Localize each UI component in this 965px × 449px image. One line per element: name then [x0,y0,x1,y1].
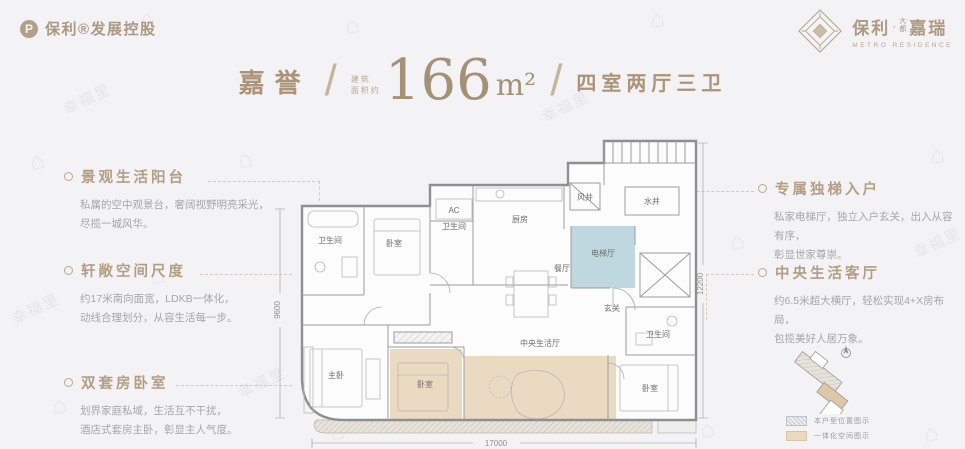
bullet-ring-icon [64,172,73,181]
dim-width: 17000 [485,439,508,448]
watermark-house-icon: ⌂ [727,227,747,257]
feature-central-living: 中央生活客厅 约6.5米超大横厅，轻松实现4+X房布局， 包揽美好人居万象。 [758,262,958,349]
area-figure: 建筑 面积约 166 m² [351,56,536,106]
bullet-ring-icon [64,378,73,387]
feature-title: 专属独梯入户 [775,178,880,199]
feature-body: 划界家庭私域，生活互不干扰， 酒店式套房主卧，彰显主人气度。 [80,402,279,440]
feature-title: 中央生活客厅 [775,262,880,283]
layout-spec: 四室两厅三卫 [576,67,726,96]
watermark-house-icon: ⌂ [27,147,47,177]
watermark-house-icon: ⌂ [647,5,667,35]
brand-right-dot: · [892,19,896,33]
feature-body: 私家电梯厅，独立入户玄关，出入从容有序， 彰显世家尊崇。 [774,208,958,265]
legend-label: 一体化空间图示 [814,431,870,441]
plan-legend: 本户型位置图示 一体化空间图示 [786,416,870,441]
watermark-text: 幸福里 [8,288,63,329]
divider-slash: / [325,59,337,103]
bullet-ring-icon [64,266,73,275]
room-label: 卧室 [642,383,658,393]
room-label: 风井 [577,192,593,202]
legend-swatch-tan [786,431,807,441]
brand-right-small: 大 都 [899,18,906,34]
room-label: 卧室 [417,379,433,389]
brand-poly-development: P 保利®发展控股 [20,18,157,39]
brand-left-text: 保利®发展控股 [45,18,157,39]
feature-body: 私属的空中观景台，奢阔视野明亮采光， 尽揽一城风华。 [80,196,279,234]
legend-row: 一体化空间图示 [786,431,870,441]
brand-right-sub: 嘉瑞 [909,14,947,39]
feature-title: 景观生活阳台 [81,166,186,187]
area-unit: m² [496,66,536,106]
room-label: 卫生间 [318,235,342,245]
room-label: 厨房 [512,214,528,224]
dim-left: 9600 [273,301,282,319]
room-label: AC [448,206,459,215]
headline: 嘉誉 / 建筑 面积约 166 m² / 四室两厅三卫 [0,56,965,106]
watermark-house-icon: ⌂ [342,11,362,41]
room-label: 电梯厅 [591,248,615,258]
brand-right-main: 保利 [852,14,890,39]
watermark-house-icon: ⌂ [927,141,947,171]
feature-body: 约6.5米超大横厅，轻松实现4+X房布局， 包揽美好人居万象。 [774,292,958,349]
divider-slash: / [550,59,562,103]
central-living-highlight [464,356,616,420]
room-label: 卫生间 [442,221,466,231]
legend-label: 本户型位置图示 [814,416,870,426]
feature-body: 约17米南向面宽，LDKB一体化， 动线合理划分，从容生活每一步。 [80,290,279,328]
building-keyplan [782,342,892,414]
brand-metro-residence: 保利 · 大 都 嘉瑞 METRO RESIDENCE [797,8,953,54]
leader-line [706,274,754,275]
brand-right-tagline: METRO RESIDENCE [852,42,953,49]
project-name: 嘉誉 [239,63,311,100]
room-label: 中央生活厅 [520,338,560,348]
room-label: 卫生间 [646,329,670,339]
feature-space-scale: 轩敞空间尺度 约17米南向面宽，LDKB一体化， 动线合理划分，从容生活每一步。 [64,260,279,328]
watermark-house-icon: ⌂ [921,419,941,449]
feature-balcony: 景观生活阳台 私属的空中观景台，奢阔视野明亮采光， 尽揽一城风华。 [64,166,279,234]
feature-title: 双套房卧室 [81,372,169,393]
balcony-strip [658,420,696,433]
feature-private-elevator: 专属独梯入户 私家电梯厅，独立入户玄关，出入从容有序， 彰显世家尊崇。 [758,178,958,265]
area-prefix: 建筑 面积约 [351,74,381,96]
room-label: 主卧 [328,370,344,380]
feature-title: 轩敞空间尺度 [81,260,186,281]
room-label: 水井 [644,196,660,206]
bullet-ring-icon [758,268,767,277]
balcony-strip [314,420,652,433]
poly-logo-icon: P [20,20,38,38]
room-label: 卧室 [386,238,402,248]
legend-swatch-hatch [786,416,807,426]
feature-suite-bedrooms: 双套房卧室 划界家庭私域，生活互不干扰， 酒店式套房主卧，彰显主人气度。 [64,372,279,440]
north-arrow-icon [842,346,851,358]
bullet-ring-icon [758,184,767,193]
area-value: 166 [385,56,492,106]
room-label: 餐厅 [554,264,570,273]
legend-row: 本户型位置图示 [786,416,870,426]
floorplan-drawing: 卫生间 卧室 AC 卫生间 厨房 风井 水井 电梯厅 餐厅 玄关 卫生间 主卧 … [268,125,708,449]
dim-right: 12200 [696,272,705,295]
poster: 幸福里 幸福里 幸福里 幸福里 幸福里 幸福里 幸福里 ⌂ ⌂ ⌂ ⌂ ⌂ ⌂ … [0,0,965,449]
diamond-ornament-icon [797,8,843,54]
room-label: 玄关 [604,303,620,313]
